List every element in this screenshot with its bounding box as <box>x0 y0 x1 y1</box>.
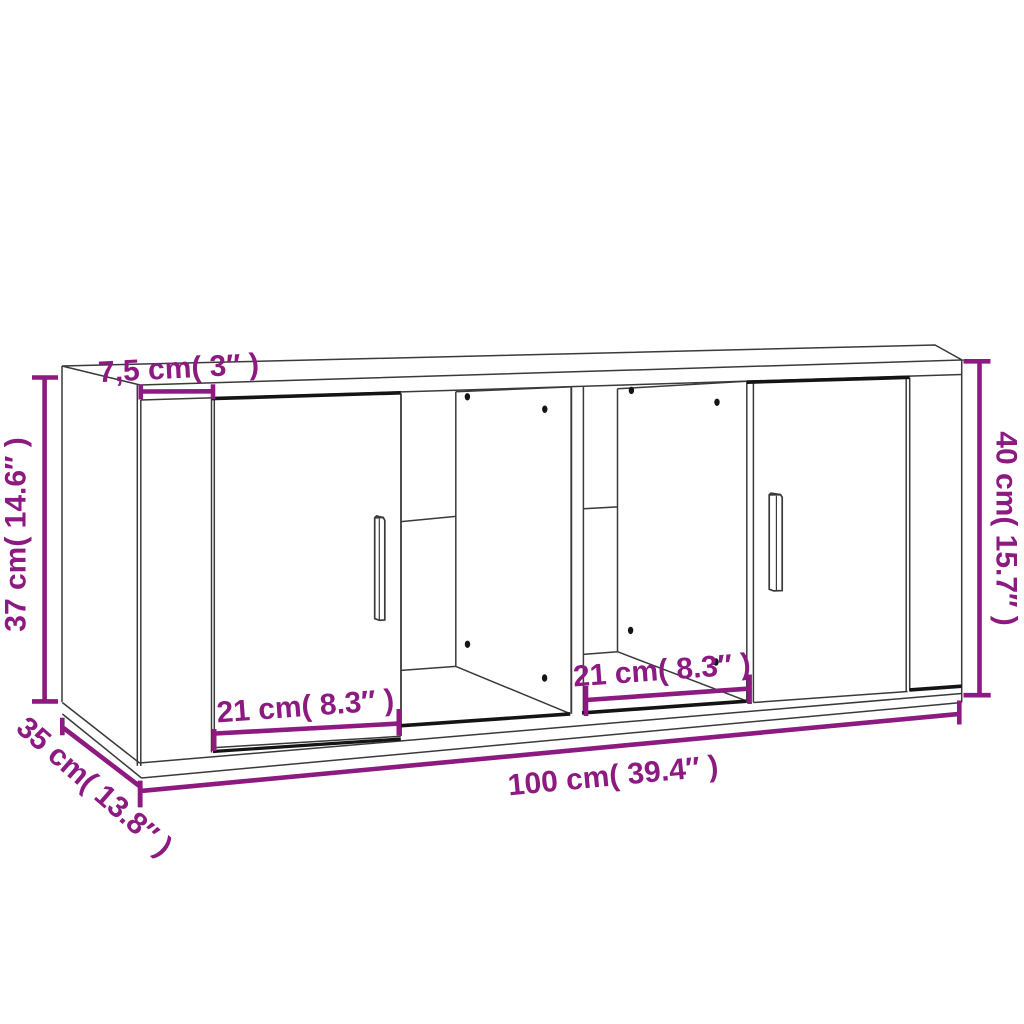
svg-text:37 cm( 14.6″ ): 37 cm( 14.6″ ) <box>0 437 33 631</box>
svg-text:40 cm( 15.7″ ): 40 cm( 15.7″ ) <box>990 431 1023 625</box>
